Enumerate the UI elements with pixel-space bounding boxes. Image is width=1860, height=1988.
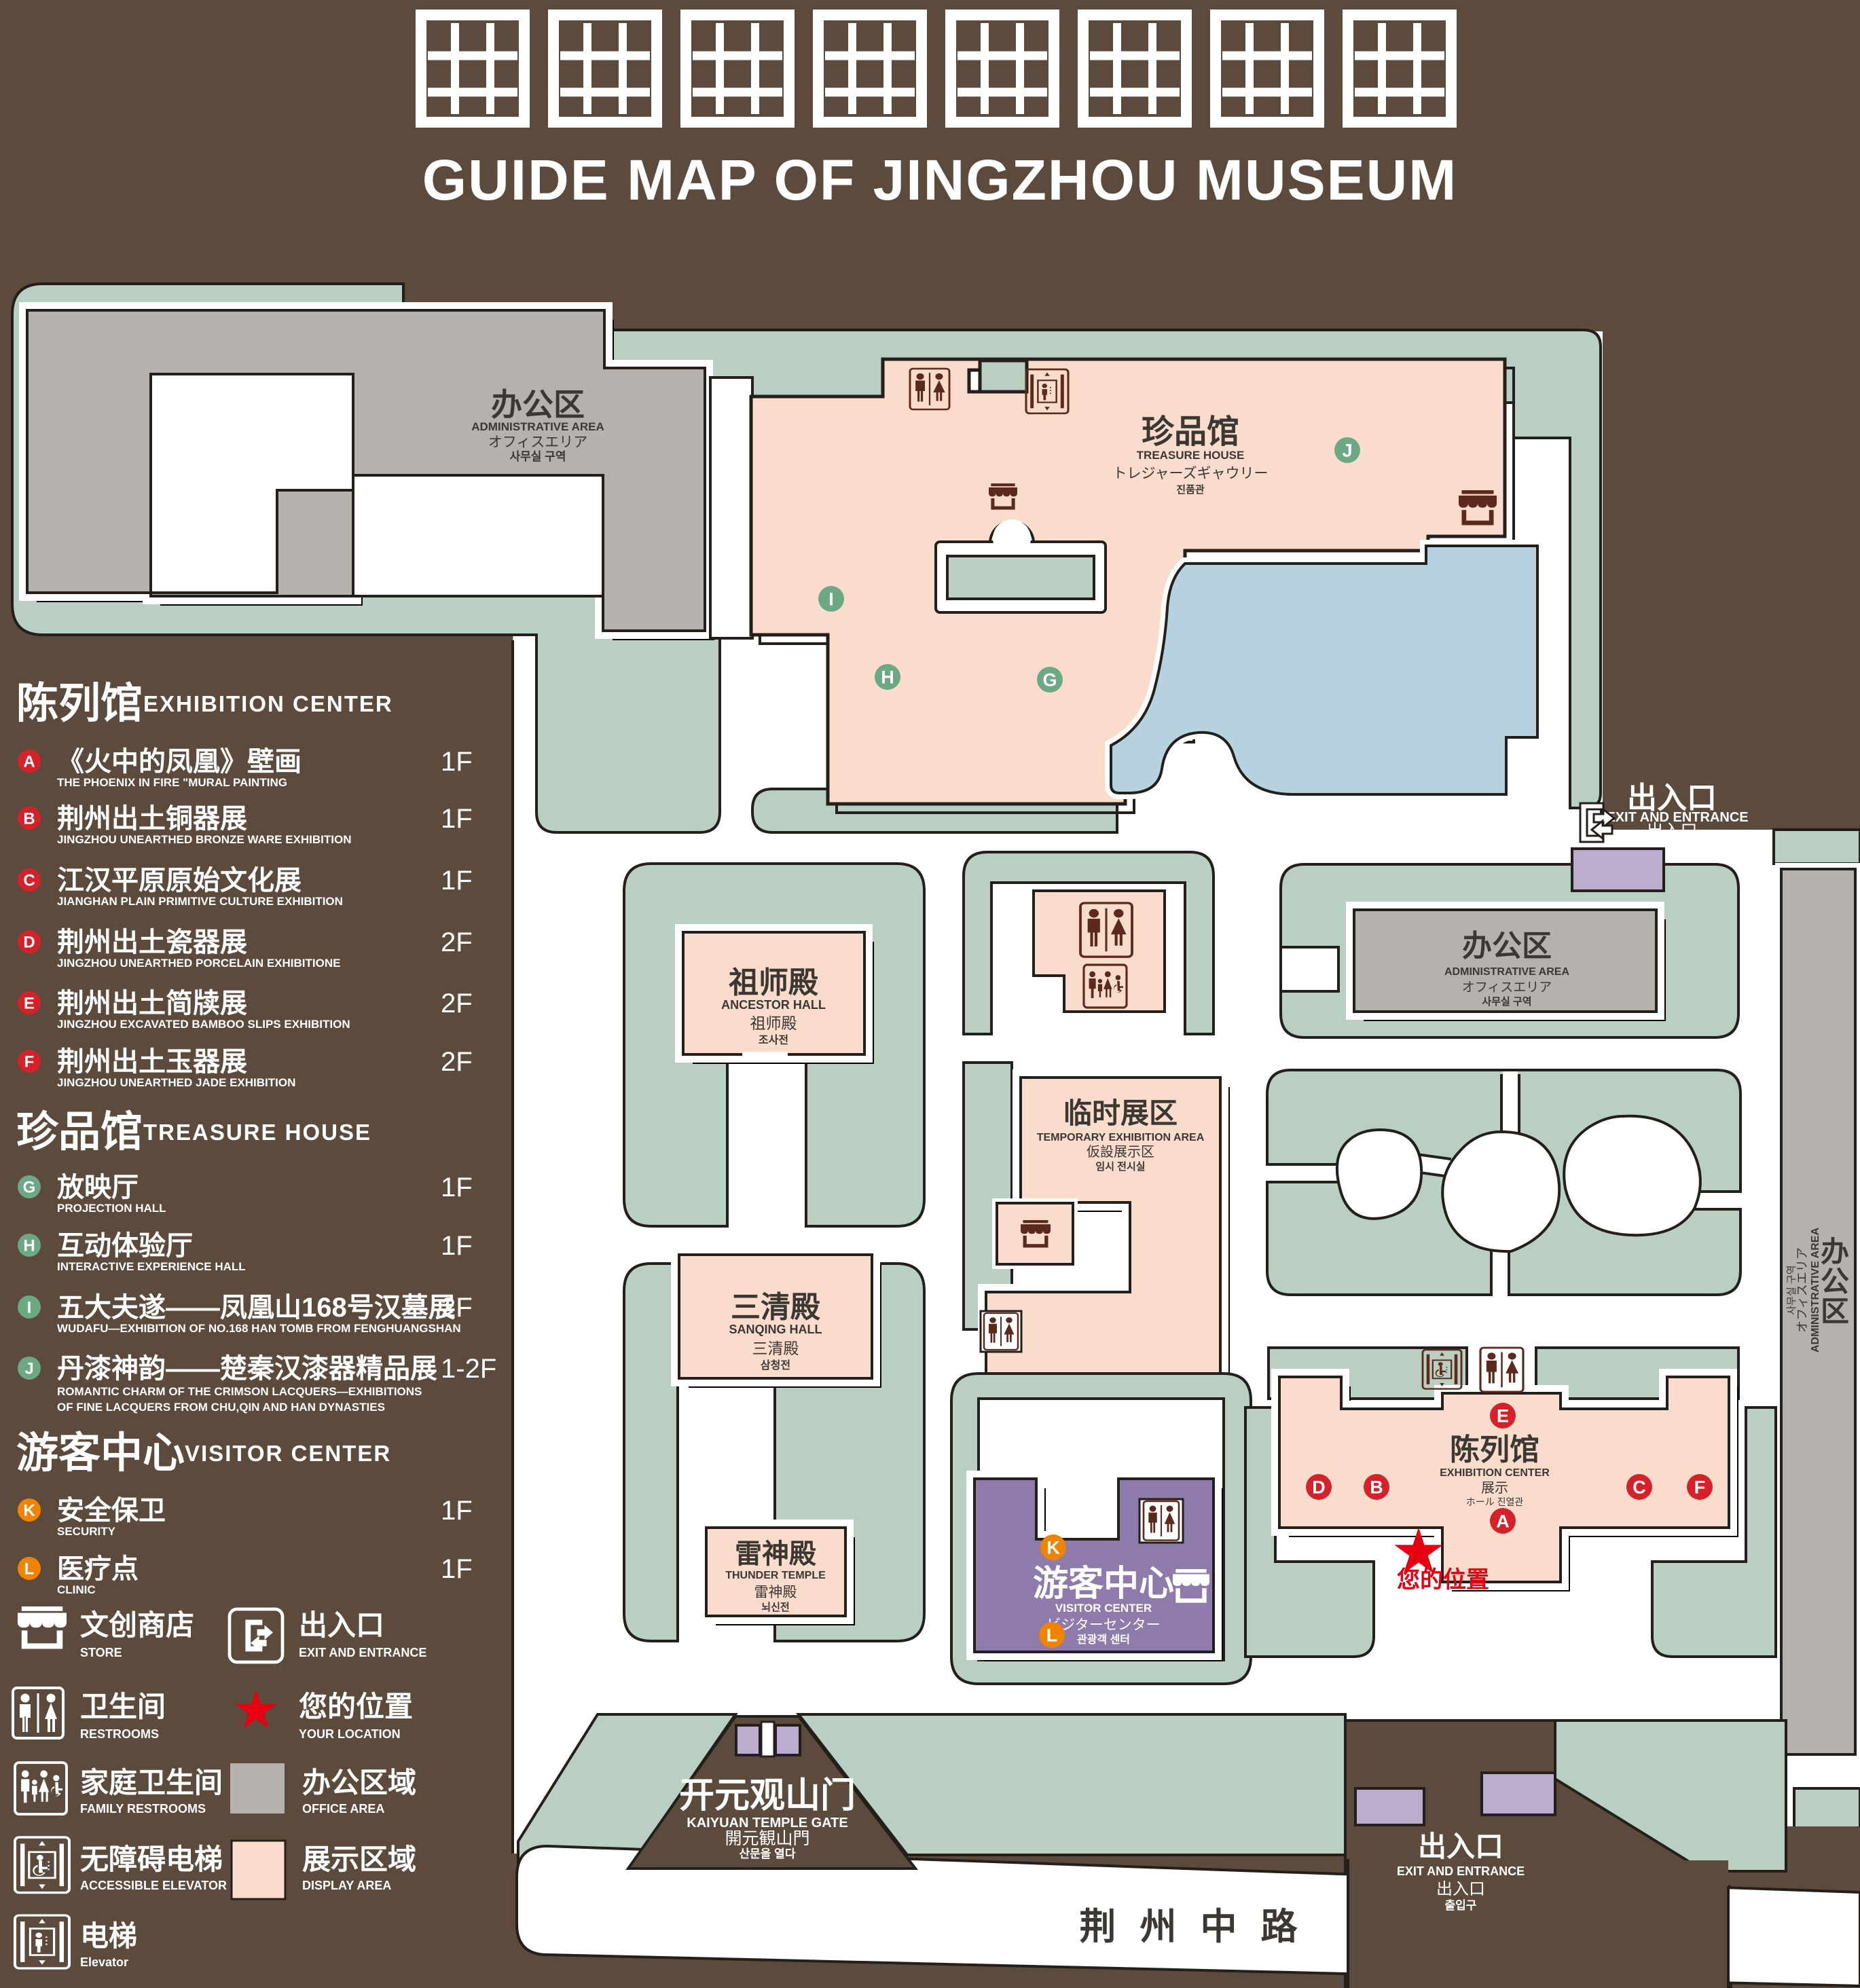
svg-text:三清殿: 三清殿 <box>752 1340 799 1357</box>
svg-text:陈列馆: 陈列馆 <box>1450 1433 1539 1467</box>
svg-text:출입구: 출입구 <box>1445 1899 1477 1912</box>
svg-text:展示: 展示 <box>1481 1481 1508 1496</box>
svg-text:临时展区: 临时展区 <box>1063 1097 1178 1129</box>
svg-text:トレジャーズギャウリー: トレジャーズギャウリー <box>1113 466 1269 481</box>
svg-text:三清殿: 三清殿 <box>731 1291 820 1324</box>
svg-text:관광객 센터: 관광객 센터 <box>1077 1633 1130 1646</box>
svg-text:荆 州 中 路: 荆 州 中 路 <box>1079 1907 1304 1947</box>
svg-text:放映厅: 放映厅 <box>57 1173 139 1202</box>
svg-text:SECURITY: SECURITY <box>57 1525 116 1538</box>
svg-text:JINGZHOU UNEARTHED PORCELAIN E: JINGZHOU UNEARTHED PORCELAIN EXHIBITIONE <box>57 957 340 970</box>
svg-text:ADMINISTRATIVE AREA: ADMINISTRATIVE AREA <box>1810 1228 1821 1352</box>
svg-text:2F: 2F <box>441 1293 473 1323</box>
svg-text:丹漆神韵——楚秦汉漆器精品展: 丹漆神韵——楚秦汉漆器精品展 <box>57 1354 437 1384</box>
svg-text:조사전: 조사전 <box>759 1034 788 1046</box>
svg-text:KAIYUAN TEMPLE GATE: KAIYUAN TEMPLE GATE <box>687 1816 847 1830</box>
svg-text:JINGZHOU EXCAVATED BAMBOO SLIP: JINGZHOU EXCAVATED BAMBOO SLIPS EXHIBITI… <box>57 1018 350 1031</box>
svg-text:ACCESSIBLE ELEVATOR: ACCESSIBLE ELEVATOR <box>80 1879 227 1892</box>
svg-text:您的位置: 您的位置 <box>299 1691 413 1723</box>
svg-text:陈列馆: 陈列馆 <box>16 680 143 727</box>
svg-text:B: B <box>1370 1477 1383 1497</box>
svg-text:VISITOR CENTER: VISITOR CENTER <box>1055 1602 1152 1615</box>
svg-text:TEMPORARY EXHIBITION AREA: TEMPORARY EXHIBITION AREA <box>1037 1132 1205 1143</box>
svg-text:区: 区 <box>1821 1295 1849 1327</box>
svg-text:J: J <box>1342 440 1352 460</box>
svg-text:オフィスエリア: オフィスエリア <box>1462 980 1552 995</box>
svg-text:2F: 2F <box>441 989 473 1018</box>
svg-text:PROJECTION HALL: PROJECTION HALL <box>57 1202 166 1215</box>
svg-text:YOUR LOCATION: YOUR LOCATION <box>299 1727 401 1741</box>
svg-text:開元観山門: 開元観山門 <box>725 1829 809 1848</box>
svg-text:EXHIBITION CENTER: EXHIBITION CENTER <box>143 691 393 716</box>
svg-text:TREASURE HOUSE: TREASURE HOUSE <box>143 1120 371 1145</box>
svg-text:祖师殿: 祖师殿 <box>750 1014 797 1032</box>
svg-text:オフィスエリア: オフィスエリア <box>488 435 588 450</box>
svg-text:1F: 1F <box>441 1173 473 1202</box>
svg-text:G: G <box>23 1178 36 1196</box>
svg-text:F: F <box>24 1052 35 1071</box>
svg-text:WUDAFU—EXHIBITION OF NO.168 HA: WUDAFU—EXHIBITION OF NO.168 HAN TOMB FRO… <box>57 1322 461 1335</box>
svg-text:F: F <box>1694 1477 1706 1497</box>
svg-text:电梯: 电梯 <box>80 1920 137 1952</box>
svg-text:TREASURE HOUSE: TREASURE HOUSE <box>1137 449 1245 462</box>
svg-text:EXIT AND ENTRANCE: EXIT AND ENTRANCE <box>1397 1864 1525 1878</box>
svg-text:INTERACTIVE EXPERIENCE HALL: INTERACTIVE EXPERIENCE HALL <box>57 1260 246 1273</box>
svg-text:1F: 1F <box>441 804 473 834</box>
svg-text:STORE: STORE <box>80 1646 122 1659</box>
svg-text:C: C <box>1633 1477 1646 1497</box>
svg-text:《火中的凤凰》壁画: 《火中的凤凰》壁画 <box>57 747 302 777</box>
svg-text:THUNDER TEMPLE: THUNDER TEMPLE <box>725 1570 826 1581</box>
svg-text:互动体验厅: 互动体验厅 <box>57 1231 193 1261</box>
svg-text:无障碍电梯: 无障碍电梯 <box>80 1843 223 1875</box>
svg-text:A: A <box>1496 1511 1510 1531</box>
svg-text:JINGZHOU UNEARTHED BRONZE WARE: JINGZHOU UNEARTHED BRONZE WARE EXHIBITIO… <box>57 833 352 846</box>
svg-text:L: L <box>1046 1625 1058 1645</box>
svg-text:RESTROOMS: RESTROOMS <box>80 1727 159 1741</box>
svg-text:1F: 1F <box>441 1496 473 1526</box>
svg-text:江汉平原原始文化展: 江汉平原原始文化展 <box>57 866 302 896</box>
svg-text:卫生间: 卫生间 <box>80 1691 166 1723</box>
svg-text:GUIDE MAP OF JINGZHOU MUSEUM: GUIDE MAP OF JINGZHOU MUSEUM <box>422 148 1458 212</box>
svg-text:荆州出土铜器展: 荆州出土铜器展 <box>57 804 247 834</box>
svg-text:I: I <box>27 1298 32 1317</box>
svg-text:荆州出土简牍展: 荆州出土简牍展 <box>57 989 247 1018</box>
svg-text:J: J <box>24 1359 33 1378</box>
svg-text:1F: 1F <box>441 1554 473 1584</box>
svg-text:文创商店: 文创商店 <box>80 1609 194 1641</box>
svg-text:뇌신전: 뇌신전 <box>761 1602 789 1613</box>
svg-text:展示区域: 展示区域 <box>302 1843 416 1875</box>
svg-text:THE PHOENIX IN FIRE "MURAL PAI: THE PHOENIX IN FIRE "MURAL PAINTING <box>57 776 287 789</box>
svg-text:사무실 구역: 사무실 구역 <box>1482 996 1531 1008</box>
svg-text:出入口: 出入口 <box>1418 1830 1503 1862</box>
svg-text:家庭卫生间: 家庭卫生间 <box>80 1767 223 1799</box>
svg-text:I: I <box>828 589 834 609</box>
svg-text:D: D <box>23 933 35 951</box>
svg-text:办: 办 <box>1821 1236 1849 1268</box>
svg-text:OF FINE LACQUERS FROM CHU,QIN: OF FINE LACQUERS FROM CHU,QIN AND HAN DY… <box>57 1401 385 1414</box>
svg-text:办公区域: 办公区域 <box>302 1767 416 1799</box>
svg-text:EXIT AND ENTRANCE: EXIT AND ENTRANCE <box>299 1646 426 1659</box>
svg-text:2F: 2F <box>441 927 473 957</box>
svg-text:DISPLAY AREA: DISPLAY AREA <box>302 1879 391 1892</box>
svg-text:H: H <box>23 1236 35 1255</box>
svg-text:G: G <box>1042 669 1057 690</box>
svg-text:B: B <box>23 809 35 828</box>
svg-text:JIANGHAN PLAIN PRIMITIVE CULTU: JIANGHAN PLAIN PRIMITIVE CULTURE EXHIBIT… <box>57 895 343 908</box>
svg-text:公: 公 <box>1821 1266 1849 1297</box>
svg-text:游客中心: 游客中心 <box>1033 1564 1174 1604</box>
svg-text:开元观山门: 开元观山门 <box>679 1776 856 1816</box>
svg-text:珍品馆: 珍品馆 <box>1142 414 1239 450</box>
svg-text:出入口: 出入口 <box>299 1609 384 1641</box>
svg-text:진품관: 진품관 <box>1176 484 1205 496</box>
svg-text:仮設展示区: 仮設展示区 <box>1087 1144 1154 1160</box>
svg-text:ADMINISTRATIVE AREA: ADMINISTRATIVE AREA <box>471 420 604 433</box>
svg-text:D: D <box>1312 1477 1326 1497</box>
svg-text:H: H <box>881 667 894 687</box>
svg-text:1F: 1F <box>441 866 473 896</box>
svg-text:E: E <box>1497 1405 1509 1426</box>
svg-text:OFFICE AREA: OFFICE AREA <box>302 1802 384 1816</box>
svg-text:C: C <box>23 871 35 889</box>
svg-text:1-2F: 1-2F <box>441 1354 496 1384</box>
svg-text:1F: 1F <box>441 1231 473 1261</box>
svg-text:삼청전: 삼청전 <box>761 1359 790 1372</box>
svg-text:安全保卫: 安全保卫 <box>57 1495 166 1526</box>
svg-text:임시 전시실: 임시 전시실 <box>1095 1161 1145 1173</box>
svg-text:荆州出土玉器展: 荆州出土玉器展 <box>57 1047 247 1077</box>
svg-text:您的位置: 您的位置 <box>1397 1567 1489 1593</box>
svg-text:2F: 2F <box>441 1047 473 1077</box>
svg-text:Elevator: Elevator <box>80 1955 128 1969</box>
svg-text:A: A <box>23 752 35 771</box>
svg-text:出入口: 出入口 <box>1436 1880 1485 1898</box>
svg-text:SANQING HALL: SANQING HALL <box>729 1323 822 1336</box>
svg-text:1F: 1F <box>441 747 473 777</box>
svg-text:荆州出土瓷器展: 荆州出土瓷器展 <box>57 927 247 957</box>
svg-text:VISITOR CENTER: VISITOR CENTER <box>185 1441 391 1466</box>
svg-text:雷神殿: 雷神殿 <box>735 1539 816 1569</box>
svg-text:K: K <box>1046 1537 1060 1558</box>
svg-text:办公区: 办公区 <box>491 387 585 422</box>
svg-text:EXHIBITION CENTER: EXHIBITION CENTER <box>1440 1467 1550 1479</box>
svg-text:JINGZHOU UNEARTHED JADE EXHIBI: JINGZHOU UNEARTHED JADE EXHIBITION <box>57 1076 295 1089</box>
svg-text:사무실 구역: 사무실 구역 <box>1786 1265 1798 1314</box>
svg-text:祖师殿: 祖师殿 <box>729 966 818 999</box>
svg-text:游客中心: 游客中心 <box>16 1430 185 1477</box>
svg-text:FAMILY RESTROOMS: FAMILY RESTROOMS <box>80 1802 206 1816</box>
svg-text:ADMINISTRATIVE AREA: ADMINISTRATIVE AREA <box>1444 966 1569 978</box>
svg-text:オフィスエリア: オフィスエリア <box>1795 1247 1809 1333</box>
svg-text:雷神殿: 雷神殿 <box>754 1585 797 1600</box>
svg-text:办公区: 办公区 <box>1462 929 1552 963</box>
svg-text:산문을 열다: 산문을 열다 <box>740 1847 796 1860</box>
svg-text:L: L <box>24 1560 35 1578</box>
svg-text:五大夫遂——凤凰山168号汉墓展: 五大夫遂——凤凰山168号汉墓展 <box>57 1293 456 1323</box>
svg-text:ホール 진열관: ホール 진열관 <box>1466 1496 1524 1507</box>
svg-text:珍品馆: 珍品馆 <box>16 1109 143 1156</box>
svg-text:E: E <box>24 994 35 1012</box>
svg-text:사무실 구역: 사무실 구역 <box>510 450 566 463</box>
svg-text:ANCESTOR HALL: ANCESTOR HALL <box>721 998 826 1012</box>
svg-text:医疗点: 医疗点 <box>57 1554 139 1584</box>
svg-text:ROMANTIC CHARM OF THE CRIMSON: ROMANTIC CHARM OF THE CRIMSON LACQUERS—E… <box>57 1385 422 1398</box>
svg-text:K: K <box>23 1501 35 1520</box>
svg-text:CLINIC: CLINIC <box>57 1583 96 1596</box>
